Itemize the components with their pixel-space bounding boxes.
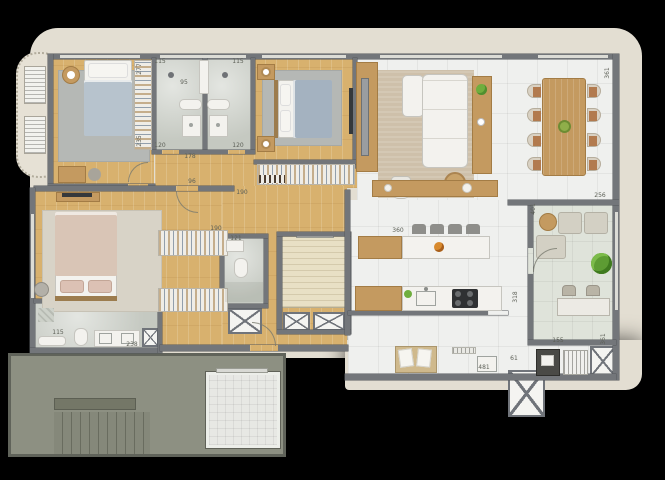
bedroom2-lamp-2 [261, 139, 271, 149]
laundry-linen-2 [416, 348, 432, 367]
shaft-2 [313, 312, 345, 331]
dim-95: 95 [174, 80, 194, 86]
wall-masterbath-south [30, 348, 162, 353]
bath1-door [162, 150, 179, 154]
sideboard-bowl-1 [384, 184, 392, 192]
dim-61: 61 [504, 356, 524, 362]
service-elevator-door [216, 368, 268, 373]
shower-partition [199, 60, 209, 94]
dining-chair-6 [587, 108, 601, 122]
burner-4 [467, 300, 473, 306]
sofa [422, 74, 468, 168]
window-bed1 [60, 55, 140, 58]
kitchen-sink [416, 291, 436, 306]
window-dining [538, 55, 608, 58]
window-master [31, 214, 34, 298]
bedroom1-lamp-shade [67, 71, 75, 79]
dining-chair-7 [587, 133, 601, 147]
wall-elevator-north [277, 232, 351, 236]
closet-rail-2 [158, 288, 228, 312]
dining-chair-2 [527, 108, 541, 122]
console-vase [477, 118, 485, 126]
island-stool-3 [448, 224, 462, 234]
dim-190a: 190 [232, 190, 252, 196]
wall-master-north [34, 186, 234, 191]
private-elevator [281, 236, 347, 308]
bath1-bench [179, 99, 202, 110]
dim-120b: 120 [228, 143, 248, 149]
master-pillow-1 [60, 280, 84, 293]
dim-120a: 120 [150, 143, 170, 149]
dim-401: 401 [531, 199, 537, 219]
dim-481: 481 [474, 365, 494, 371]
island-stool-1 [412, 224, 426, 234]
sofa-chaise [402, 75, 424, 117]
dining-chair-4 [527, 157, 541, 171]
dining-chair-8 [587, 157, 601, 171]
bedroom2-pillow-1 [280, 84, 291, 106]
dim-238: 238 [122, 342, 142, 348]
dim-115c: 115 [48, 330, 68, 336]
bedroom1-desk [58, 166, 86, 183]
dining-chair-5 [587, 84, 601, 98]
dim-115a: 115 [150, 59, 170, 65]
lavabo-shower-area [225, 282, 263, 302]
master-duvet [55, 212, 117, 276]
terrace-sofa-cushion-1 [558, 212, 582, 234]
master-pillow-2 [88, 280, 112, 293]
stair-landing [54, 398, 136, 410]
dim-121: 121 [226, 236, 246, 242]
burner-1 [455, 291, 461, 297]
bath2-door [228, 150, 245, 154]
wall-lavabo-east [264, 237, 268, 307]
bedroom2-lamp-1 [261, 67, 271, 77]
shower-head-1 [168, 72, 174, 78]
console-plant [476, 84, 487, 95]
drying-rack [452, 347, 476, 354]
island-stool-4 [466, 224, 480, 234]
bedroom1-pillow [88, 63, 128, 78]
floor-plan: 277 115 115 95 235 120 120 178 96 190 19… [0, 0, 665, 480]
dim-361a: 361 [605, 63, 611, 83]
window-bed2 [262, 55, 346, 58]
master-side-table [34, 282, 49, 297]
ac-condenser-1 [24, 66, 46, 104]
closet-rail-1 [158, 230, 228, 256]
dim-277: 277 [137, 59, 143, 79]
living-tv [361, 78, 369, 156]
service-elevator [206, 372, 280, 448]
laundry-linen-1 [398, 348, 414, 368]
window-living [380, 55, 502, 58]
kitchen-plant [404, 290, 412, 298]
wall-left-upper [48, 54, 53, 189]
wall-elevator-south [277, 330, 351, 334]
wall-bath-bed2 [251, 58, 255, 152]
bedroom1-stool [88, 168, 101, 181]
sideboard-bowl-2 [462, 183, 472, 193]
stairs [54, 412, 150, 454]
bath2-bench [207, 99, 230, 110]
shaft-4 [142, 328, 159, 347]
kitchen-island [402, 236, 490, 259]
kitchen-service-pass [488, 311, 508, 315]
lavabo-toilet [234, 258, 248, 278]
corridor-bath-floor [155, 152, 255, 188]
terrace-stool-1 [562, 285, 576, 296]
wall-terrace-north [508, 200, 619, 205]
bedroom1-duvet [84, 80, 132, 136]
kitchen-faucet [424, 287, 428, 291]
wall-bed1-bath [152, 58, 156, 152]
burner-3 [455, 300, 461, 306]
terrace-sofa-cushion-2 [584, 212, 608, 234]
master-sink-1 [99, 333, 112, 344]
burner-2 [467, 291, 473, 297]
kitchen-cabinet-low [355, 286, 402, 311]
shower-head-2 [222, 72, 228, 78]
dim-256: 256 [590, 193, 610, 199]
dim-360: 360 [388, 228, 408, 234]
dining-centerpiece [558, 120, 571, 133]
dim-96: 96 [182, 179, 202, 185]
dim-318: 318 [513, 287, 519, 307]
terrace-stool-2 [586, 285, 600, 296]
dining-chair-1 [527, 84, 541, 98]
ac-condenser-2 [24, 116, 46, 154]
terrace-plant [591, 253, 612, 274]
bath2-sink-drain [216, 123, 220, 127]
bath1-sink-drain [189, 123, 193, 127]
terrace-coffee-table [539, 213, 557, 231]
wall-elevator-west [277, 232, 282, 332]
master-headboard [55, 296, 117, 301]
fruit-bowl [434, 242, 444, 252]
master-bath-bench [38, 336, 66, 346]
terrace-bar-counter [557, 298, 610, 316]
dim-361b: 361 [601, 329, 607, 349]
master-shower-drain [38, 308, 54, 322]
dim-235: 235 [137, 131, 143, 151]
shaft-1 [283, 312, 310, 331]
master-tv [62, 193, 92, 197]
island-cabinet [358, 236, 402, 259]
bedroom2-duvet [293, 80, 332, 138]
island-stool-2 [430, 224, 444, 234]
dim-190b: 190 [206, 226, 226, 232]
dim-155: 155 [548, 338, 568, 344]
washing-machine [563, 350, 588, 375]
dim-115b: 115 [228, 59, 248, 65]
dim-178: 178 [180, 154, 200, 160]
bbq-sink [541, 355, 554, 366]
dining-chair-3 [527, 133, 541, 147]
master-toilet [74, 328, 88, 346]
bedroom2-tv [349, 88, 353, 134]
window-terrace [615, 212, 618, 310]
wall-terrace-west [528, 204, 533, 345]
bedroom2-pillow-2 [280, 110, 291, 132]
wall-kitchen-south [348, 311, 508, 315]
bedroom2-shoe-rack [259, 175, 285, 183]
